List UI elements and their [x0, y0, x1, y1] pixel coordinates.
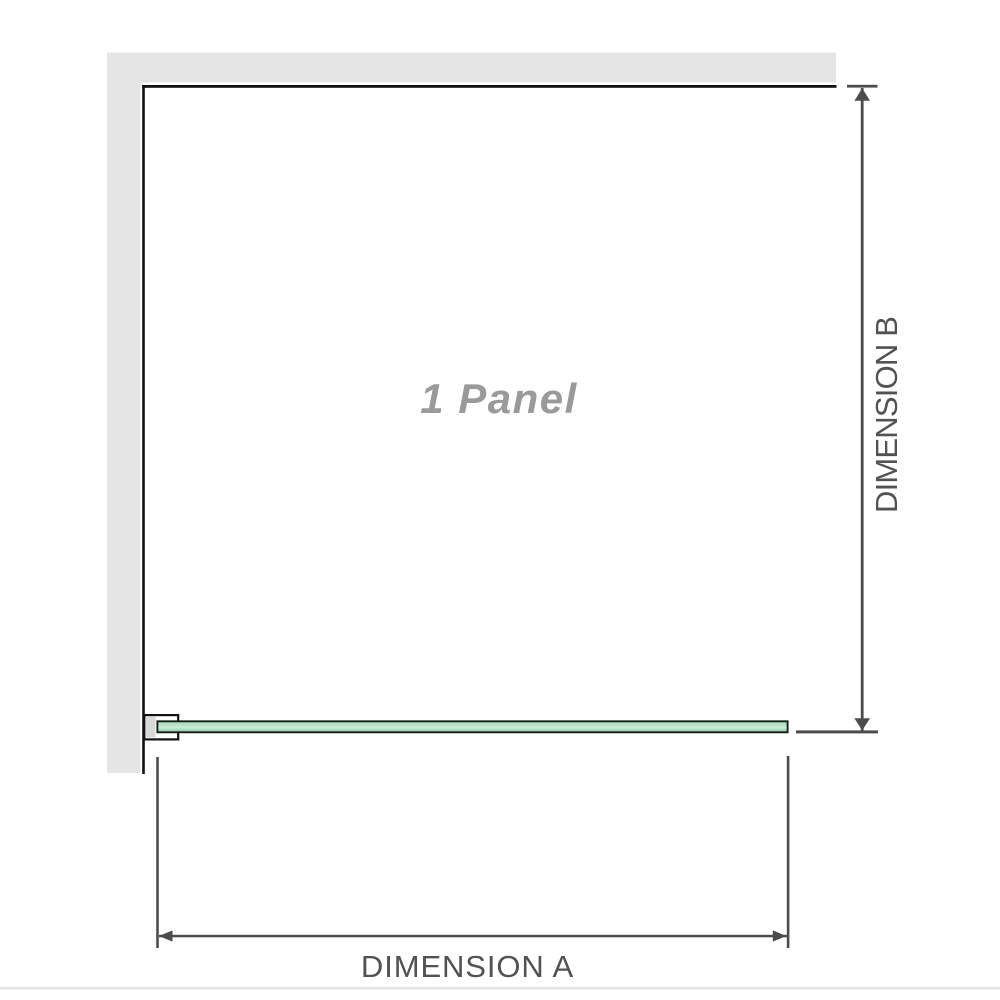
svg-text:DIMENSION B: DIMENSION B [869, 317, 904, 513]
svg-text:1 Panel: 1 Panel [420, 375, 578, 422]
svg-text:DIMENSION A: DIMENSION A [361, 949, 574, 984]
